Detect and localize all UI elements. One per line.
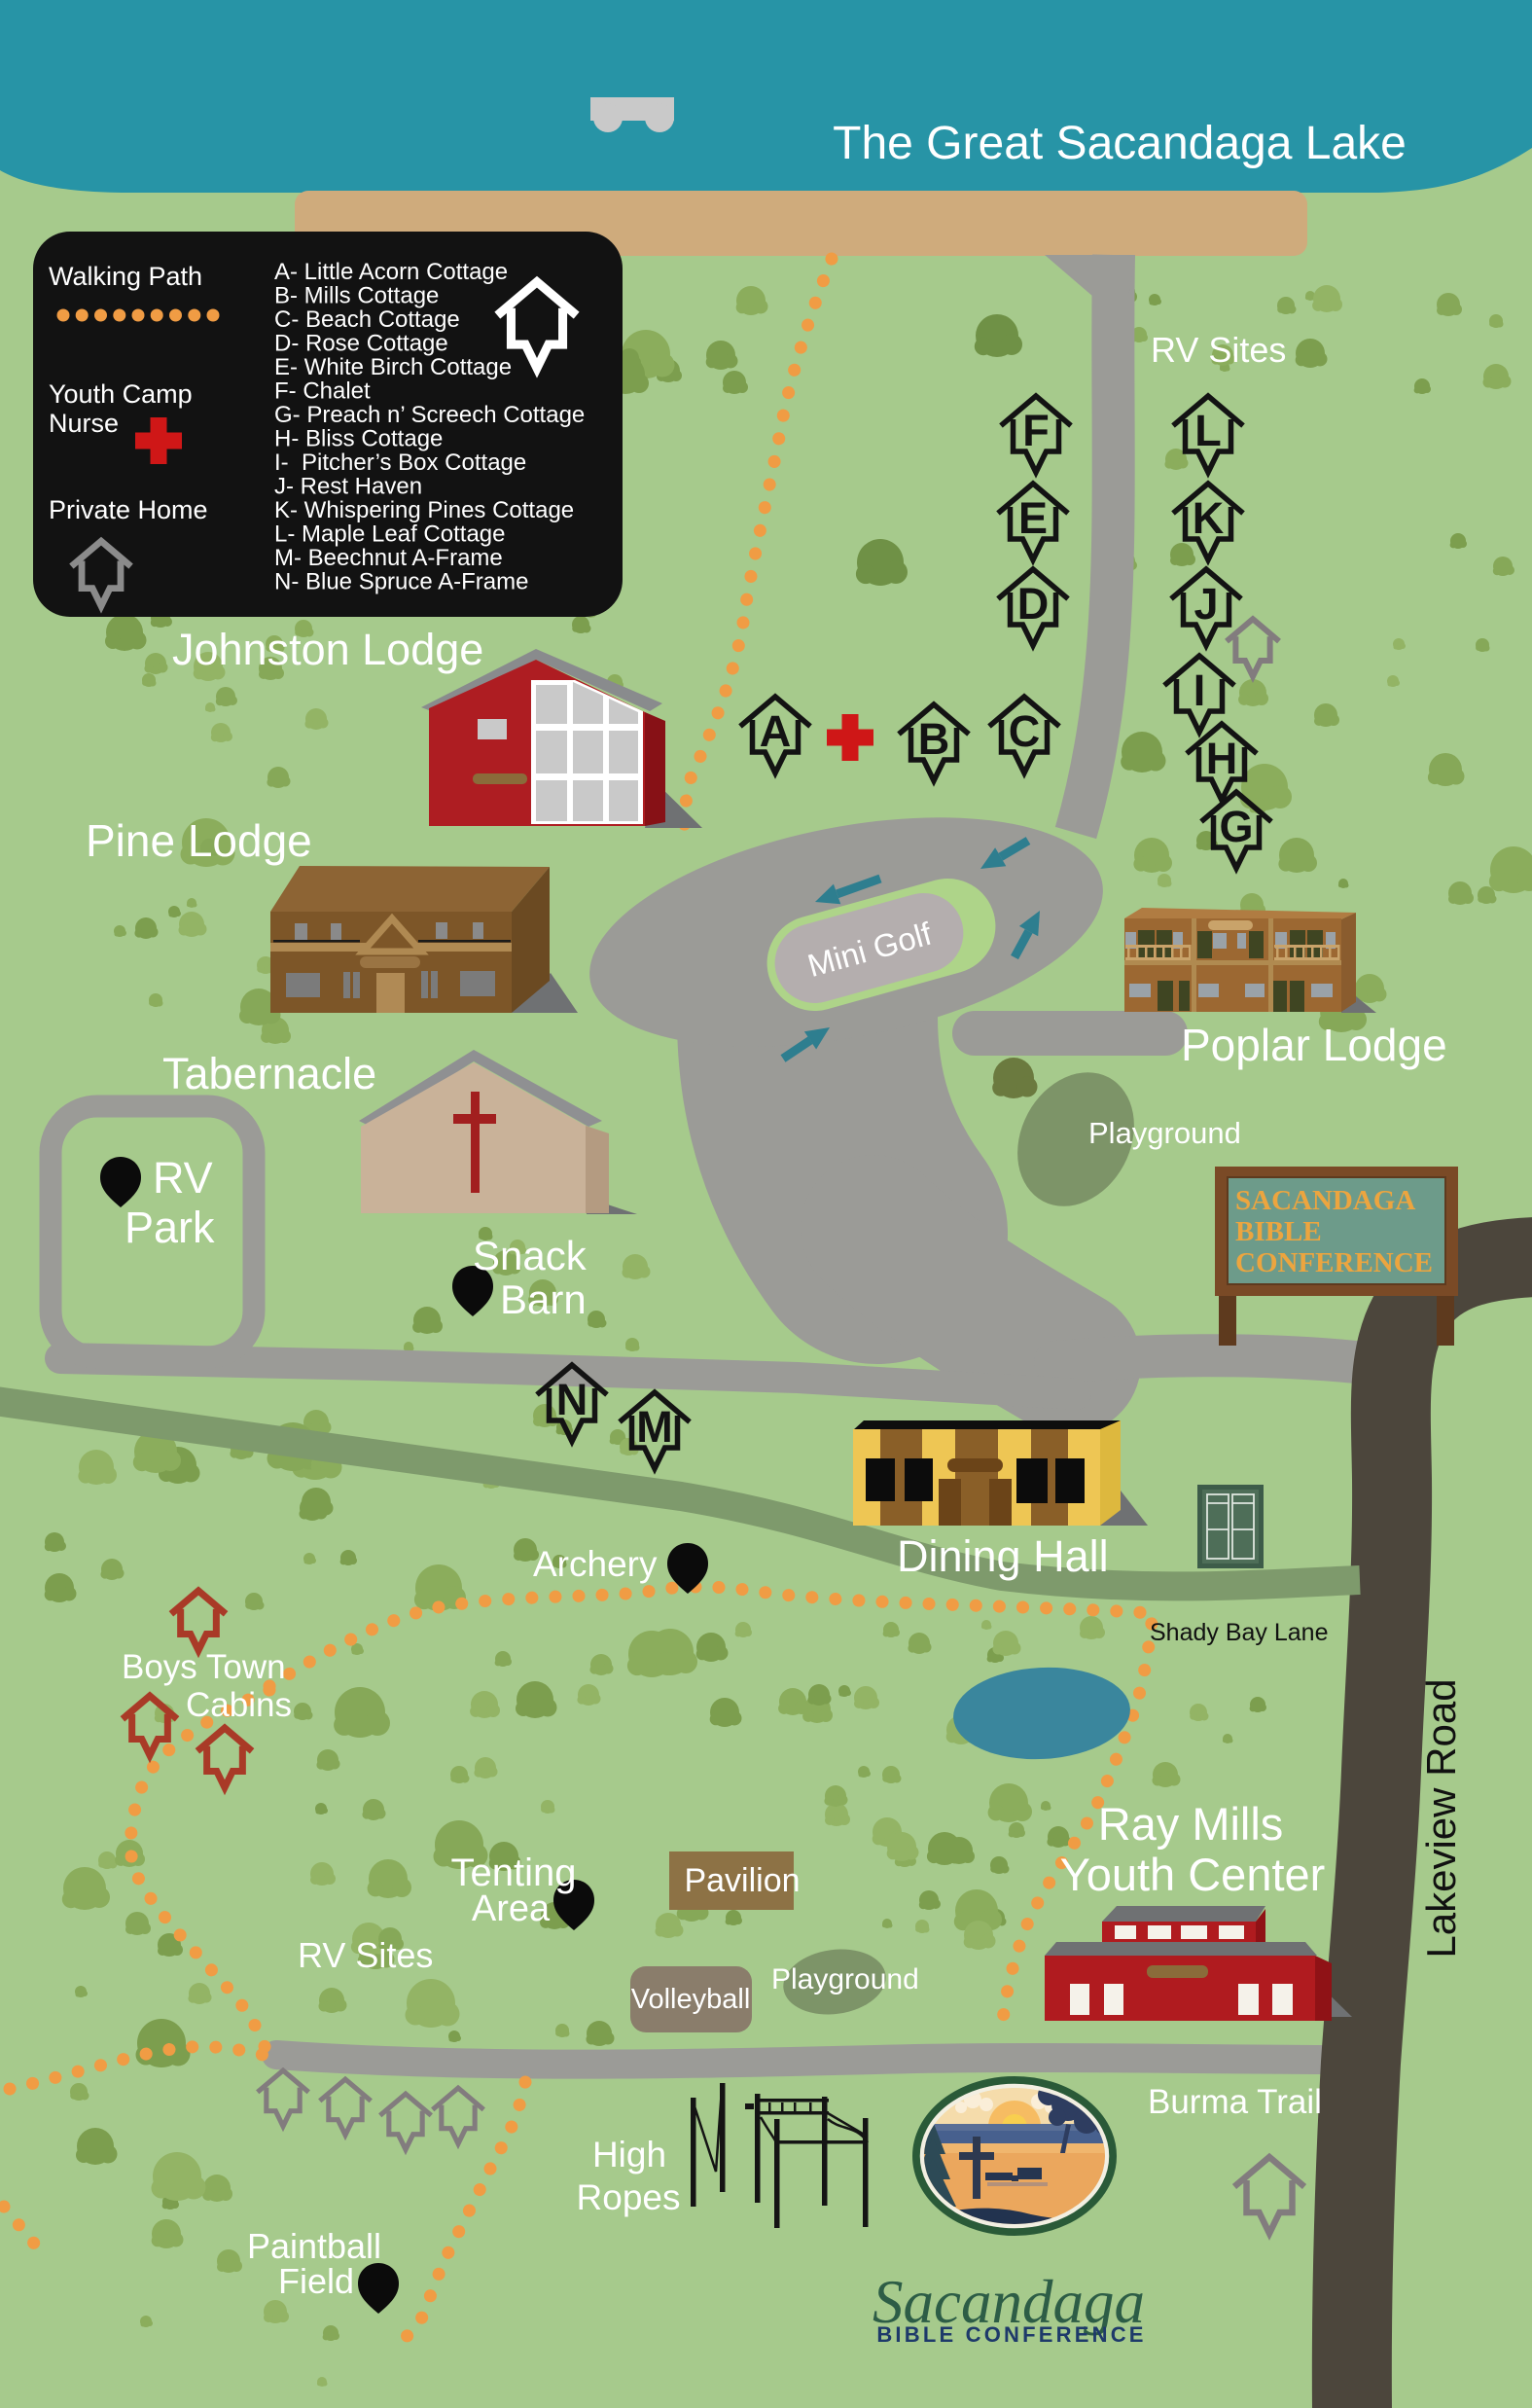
svg-text:J- Rest Haven: J- Rest Haven: [274, 474, 422, 500]
svg-text:Youth Camp: Youth Camp: [49, 379, 193, 409]
svg-text:D: D: [1017, 579, 1050, 629]
svg-text:Paintball: Paintball: [247, 2226, 381, 2266]
svg-text:K: K: [1193, 493, 1225, 543]
svg-text:E: E: [1018, 493, 1048, 543]
svg-text:Shady Bay Lane: Shady Bay Lane: [1150, 1619, 1328, 1646]
svg-text:I- Pitcher’s Box Cottage: I- Pitcher’s Box Cottage: [274, 449, 526, 476]
svg-text:C: C: [1009, 706, 1041, 756]
svg-text:High: High: [592, 2135, 666, 2174]
svg-text:RV Sites: RV Sites: [1151, 330, 1286, 370]
svg-text:M: M: [636, 1402, 673, 1452]
svg-text:G: G: [1219, 802, 1253, 851]
svg-text:Area: Area: [472, 1888, 551, 1929]
svg-text:Johnston Lodge: Johnston Lodge: [172, 625, 483, 674]
svg-text:BIBLE: BIBLE: [1235, 1216, 1322, 1247]
svg-text:Park: Park: [125, 1203, 215, 1252]
svg-text:F- Chalet: F- Chalet: [274, 378, 371, 405]
svg-text:K- Whispering Pines Cottage: K- Whispering Pines Cottage: [274, 497, 574, 523]
svg-text:A- Little Acorn Cottage: A- Little Acorn Cottage: [274, 259, 508, 285]
svg-text:L: L: [1194, 406, 1222, 455]
svg-text:Poplar Lodge: Poplar Lodge: [1181, 1020, 1447, 1070]
svg-text:Ropes: Ropes: [577, 2177, 681, 2217]
svg-text:Youth Center: Youth Center: [1060, 1849, 1326, 1900]
svg-text:Archery: Archery: [533, 1544, 658, 1584]
svg-text:Playground: Playground: [771, 1963, 919, 1995]
svg-text:Nurse: Nurse: [49, 409, 119, 438]
svg-text:N: N: [556, 1375, 588, 1424]
svg-text:H- Bliss Cottage: H- Bliss Cottage: [274, 426, 443, 452]
svg-text:F: F: [1022, 406, 1050, 455]
svg-text:Playground: Playground: [1088, 1116, 1241, 1150]
svg-text:I: I: [1194, 665, 1206, 715]
svg-text:Burma Trail: Burma Trail: [1148, 2083, 1322, 2121]
svg-text:Field: Field: [278, 2261, 354, 2301]
svg-text:J: J: [1194, 579, 1218, 629]
svg-text:L- Maple Leaf Cottage: L- Maple Leaf Cottage: [274, 521, 505, 548]
svg-text:Pavilion: Pavilion: [684, 1862, 800, 1899]
svg-text:Private Home: Private Home: [49, 495, 208, 524]
svg-text:D- Rose Cottage: D- Rose Cottage: [274, 331, 448, 357]
svg-text:RV: RV: [153, 1153, 213, 1203]
svg-text:B: B: [918, 714, 950, 764]
svg-text:RV Sites: RV Sites: [298, 1935, 433, 1975]
svg-text:Snack: Snack: [473, 1233, 588, 1278]
svg-text:Ray Mills: Ray Mills: [1098, 1798, 1284, 1850]
svg-text:Pine Lodge: Pine Lodge: [86, 815, 312, 866]
svg-text:Lakeview Road: Lakeview Road: [1418, 1678, 1464, 1958]
svg-text:Cabins: Cabins: [186, 1686, 292, 1724]
svg-text:N- Blue Spruce A-Frame: N- Blue Spruce A-Frame: [274, 569, 528, 595]
svg-text:BIBLE CONFERENCE: BIBLE CONFERENCE: [876, 2322, 1146, 2347]
svg-text:A: A: [760, 706, 792, 756]
svg-text:The Great Sacandaga Lake: The Great Sacandaga Lake: [833, 118, 1407, 169]
svg-text:Tabernacle: Tabernacle: [162, 1049, 376, 1098]
svg-text:Barn: Barn: [500, 1276, 587, 1322]
svg-text:Volleyball: Volleyball: [631, 1984, 751, 2015]
svg-text:Dining Hall: Dining Hall: [897, 1531, 1109, 1581]
svg-text:G- Preach n’ Screech Cottage: G- Preach n’ Screech Cottage: [274, 402, 585, 428]
svg-text:CONFERENCE: CONFERENCE: [1235, 1247, 1433, 1278]
svg-text:M- Beechnut A-Frame: M- Beechnut A-Frame: [274, 545, 503, 571]
svg-text:H: H: [1206, 734, 1238, 783]
svg-text:Boys Town: Boys Town: [122, 1648, 286, 1686]
svg-text:C- Beach Cottage: C- Beach Cottage: [274, 306, 460, 333]
svg-text:B- Mills Cottage: B- Mills Cottage: [274, 283, 439, 309]
svg-text:Walking Path: Walking Path: [49, 262, 202, 291]
svg-text:E- White Birch Cottage: E- White Birch Cottage: [274, 354, 512, 380]
svg-text:SACANDAGA: SACANDAGA: [1235, 1185, 1415, 1216]
